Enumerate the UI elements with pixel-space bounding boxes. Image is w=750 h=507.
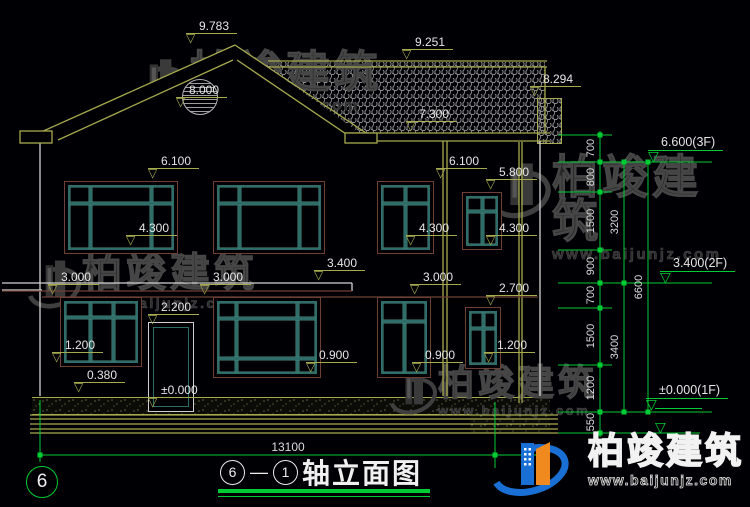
elevation-marker: 4.300▽ (486, 222, 537, 236)
elevation-triangle-icon: ▽ (186, 32, 195, 44)
dimension-value: 3400 (609, 325, 621, 369)
window-transom (219, 357, 315, 360)
window-mullion (112, 303, 115, 361)
window-mullion (235, 303, 238, 372)
window-mullion (296, 303, 299, 372)
ground-hatch-right (470, 413, 550, 433)
elevation-triangle-icon: ▽ (52, 351, 61, 363)
elevation-marker: 0.900▽ (412, 349, 463, 363)
eave-box (345, 133, 377, 143)
elevation-marker: 2.200▽ (148, 301, 199, 315)
elevation-triangle-icon: ▽ (200, 283, 209, 295)
elevation-marker: 4.300▽ (406, 222, 457, 236)
axis-bubble: 6 (26, 466, 58, 498)
window (213, 297, 321, 378)
floor-level-marker: 3.400(2F)▽ (660, 257, 735, 272)
elevation-marker: 3.000▽ (48, 271, 99, 285)
elevation-value: 3.400(2F) (660, 257, 735, 272)
floor-level-marker: ±0.000(1F)▽ (646, 384, 728, 399)
window-transom (468, 210, 496, 213)
roof-tile-hatch-main (252, 62, 545, 133)
floor-level-marker: 6.600(3F)▽ (648, 136, 723, 151)
window-transom (219, 317, 315, 320)
dimension-tick (622, 281, 627, 286)
window-frame (64, 301, 138, 363)
elevation-triangle-icon: ▽ (410, 283, 419, 295)
dimension-tick (598, 306, 603, 311)
floor-level-marker: ▽ (655, 407, 702, 409)
title-text: 轴立面图 (302, 452, 422, 492)
elevation-marker: 5.800▽ (486, 166, 537, 180)
elevation-marker: 4.300▽ (126, 222, 177, 236)
elevation-marker: 6.100▽ (436, 155, 487, 169)
dimension-tick (598, 190, 603, 195)
elevation-triangle-icon: ▽ (660, 270, 671, 284)
dimension-tick (598, 281, 603, 286)
window (377, 297, 431, 378)
elevation-marker: 1.200▽ (484, 339, 535, 353)
window (64, 181, 178, 254)
elevation-marker: 0.900▽ (306, 349, 357, 363)
dimension-value: 3200 (609, 200, 621, 244)
roof-tile-hatch-side (537, 98, 562, 144)
dimension-value: 700 (585, 273, 597, 317)
elevation-triangle-icon: ▽ (406, 120, 415, 132)
dimension-tick (622, 160, 627, 165)
window (462, 192, 502, 250)
axis-start-bubble: 6 (220, 460, 245, 485)
brand-url: www.baijunjz.com (588, 472, 744, 488)
window (213, 181, 325, 254)
elevation-value: ±0.000(1F) (646, 384, 728, 399)
elevation-marker: 3.000▽ (410, 271, 461, 285)
elevation-triangle-icon: ▽ (306, 361, 315, 373)
elevation-marker: 3.400▽ (314, 257, 365, 271)
elevation-triangle-icon: ▽ (530, 85, 539, 97)
axis-end-bubble: 1 (273, 460, 298, 485)
elevation-marker: 7.300▽ (406, 108, 457, 122)
dimension-value: 6600 (633, 265, 645, 309)
window-mullion (298, 187, 301, 248)
elevation-triangle-icon: ▽ (486, 294, 495, 306)
elevation-triangle-icon: ▽ (148, 396, 157, 408)
window-transom (219, 202, 319, 205)
window-frame (217, 185, 321, 250)
elevation-triangle-icon: ▽ (148, 313, 157, 325)
elevation-marker: ±0.000▽ (148, 384, 206, 398)
elevation-triangle-icon: ▽ (436, 167, 445, 179)
dimension-value: 800 (585, 155, 597, 199)
elevation-triangle-icon: ▽ (176, 96, 185, 108)
window-mullion (150, 187, 153, 248)
axis-bubble-label: 6 (37, 471, 48, 493)
dimension-tick (598, 248, 603, 253)
elevation-triangle-icon: ▽ (74, 381, 83, 393)
window-transom (471, 327, 495, 330)
elevation-marker: 8.294▽ (530, 73, 581, 87)
elevation-marker: 9.251▽ (402, 36, 453, 50)
title-underline (218, 496, 430, 497)
elevation-marker: 0.380▽ (74, 369, 125, 383)
elevation-triangle-icon: ▽ (412, 361, 421, 373)
drawing-title: 6 — 1 轴立面图 (220, 452, 422, 492)
window (60, 297, 142, 367)
watermark-brand: 柏竣建筑 (552, 151, 702, 247)
title-dash: — (250, 462, 268, 483)
window-frame (217, 301, 317, 374)
elevation-triangle-icon: ▽ (486, 178, 495, 190)
dimension-tick (598, 133, 603, 138)
elevation-marker: 1.200▽ (52, 339, 103, 353)
elevation-triangle-icon: ▽ (148, 167, 157, 179)
window-mullion (89, 187, 92, 248)
window-mullion (403, 303, 406, 372)
brand-logo-icon (488, 434, 588, 503)
elevation-triangle-icon: ▽ (486, 234, 495, 246)
dimension-value: 1500 (585, 199, 597, 243)
elevation-marker: 9.783▽ (186, 20, 237, 34)
window-transom (383, 320, 425, 323)
dimension-tick (598, 410, 603, 415)
elevation-triangle-icon: ▽ (406, 234, 415, 246)
title-underline (218, 489, 430, 493)
dimension-tick (598, 160, 603, 165)
elevation-triangle-icon: ▽ (314, 269, 323, 281)
elevation-marker: 8.000▽ (176, 84, 227, 98)
window-transom (70, 202, 172, 205)
window-mullion (238, 187, 241, 248)
dimension-tick (38, 453, 43, 458)
elevation-triangle-icon: ▽ (402, 48, 411, 60)
eave-box (20, 131, 52, 143)
elevation-marker: 6.100▽ (148, 155, 199, 169)
window-transom (383, 202, 428, 205)
cad-elevation-canvas: 柏竣建筑 www.baijunjz.com 柏竣建筑 www.baijunjz.… (0, 0, 750, 507)
dimension-tick (598, 363, 603, 368)
window (465, 307, 501, 369)
brand-name: 柏竣建筑 (588, 430, 744, 471)
window-transom (66, 316, 136, 319)
dimension-value: 1500 (585, 314, 597, 358)
elevation-marker: 3.000▽ (200, 271, 251, 285)
brand-logo: 柏竣建筑 www.baijunjz.com (488, 434, 744, 503)
elevation-triangle-icon: ▽ (648, 149, 659, 163)
window-mullion (481, 198, 484, 244)
elevation-value (655, 407, 702, 409)
elevation-marker: 2.700▽ (486, 282, 537, 296)
elevation-triangle-icon: ▽ (126, 234, 135, 246)
window-frame (68, 185, 174, 250)
elevation-value: 6.600(3F) (648, 136, 723, 151)
elevation-triangle-icon: ▽ (484, 351, 493, 363)
elevation-triangle-icon: ▽ (48, 283, 57, 295)
dimension-tick (622, 410, 627, 415)
